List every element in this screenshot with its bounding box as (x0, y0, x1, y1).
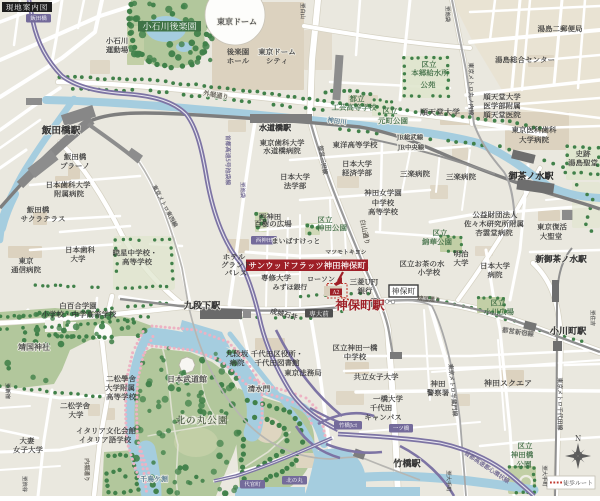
svg-text:イタリア語学校: イタリア語学校 (79, 435, 132, 446)
svg-text:まいばすけっと: まいばすけっと (272, 236, 321, 246)
svg-text:元町公園: 元町公園 (378, 116, 408, 127)
svg-text:日本武道館: 日本武道館 (167, 374, 207, 385)
svg-text:北の丸: 北の丸 (286, 476, 303, 484)
svg-text:竹橋駅: 竹橋駅 (393, 456, 420, 469)
svg-text:至大手町: 至大手町 (445, 470, 453, 492)
svg-text:清水門: 清水門 (248, 384, 271, 395)
svg-text:ローソン: ローソン (307, 274, 335, 284)
svg-text:みずほ銀行: みずほ銀行 (273, 282, 308, 292)
svg-text:三楽病院: 三楽病院 (400, 169, 430, 180)
svg-text:小学校・中学高等学校: 小学校・中学高等学校 (42, 309, 117, 320)
svg-text:至池袋: 至池袋 (444, 6, 452, 23)
svg-text:パレス: パレス (225, 268, 247, 279)
svg-text:代官町: 代官町 (244, 480, 261, 488)
svg-text:公園: 公園 (517, 459, 532, 470)
svg-text:大聖堂: 大聖堂 (540, 231, 563, 242)
svg-text:JR中央線: JR中央線 (397, 142, 425, 151)
svg-text:至住吉: 至住吉 (589, 310, 597, 327)
svg-text:附属病院: 附属病院 (54, 189, 84, 200)
svg-text:マツモトキヨシ: マツモトキヨシ (325, 247, 366, 256)
svg-text:東洋高等学校: 東洋高等学校 (333, 140, 378, 151)
svg-text:小川広場: 小川広場 (484, 307, 514, 318)
svg-text:大学: 大学 (69, 410, 84, 421)
svg-text:経済学部: 経済学部 (342, 168, 372, 179)
svg-text:高等学校: 高等学校 (106, 392, 136, 403)
svg-text:御茶ノ水駅: 御茶ノ水駅 (508, 169, 553, 182)
svg-text:湯島総合センター: 湯島総合センター (495, 55, 555, 66)
svg-text:プラーノ: プラーノ (60, 161, 90, 172)
svg-text:小学校: 小学校 (418, 267, 441, 278)
svg-text:飯田橋: 飯田橋 (30, 14, 47, 22)
svg-text:運動場: 運動場 (106, 45, 129, 56)
svg-text:小川町駅: 小川町駅 (550, 324, 586, 337)
svg-text:現地案内図: 現地案内図 (6, 2, 49, 13)
svg-text:工芸高等学校: 工芸高等学校 (332, 102, 377, 113)
svg-text:三楽病院: 三楽病院 (446, 172, 476, 183)
svg-text:大学病院: 大学病院 (519, 135, 549, 146)
svg-text:病院: 病院 (230, 358, 245, 369)
svg-text:靖国神社: 靖国神社 (18, 342, 50, 353)
svg-text:シティ: シティ (266, 56, 288, 67)
svg-text:神田スクエア: 神田スクエア (484, 378, 532, 389)
svg-text:徒歩ルート: 徒歩ルート (563, 478, 593, 487)
svg-text:公苑: 公苑 (421, 80, 436, 91)
svg-text:至大手町: 至大手町 (541, 465, 549, 487)
svg-text:本郷給水所: 本郷給水所 (411, 68, 449, 79)
svg-text:至新宿: 至新宿 (4, 383, 12, 400)
svg-text:首都高速5号池袋線: 首都高速5号池袋線 (224, 135, 233, 185)
svg-text:北の丸公園: 北の丸公園 (175, 412, 228, 426)
svg-text:大学: 大学 (71, 254, 86, 265)
svg-text:病院: 病院 (488, 270, 503, 281)
svg-text:高等学校: 高等学校 (122, 257, 152, 268)
svg-text:東京ドーム: 東京ドーム (217, 16, 257, 27)
svg-text:竹橋Jct: 竹橋Jct (339, 421, 357, 429)
svg-text:九段下駅: 九段下駅 (184, 298, 220, 311)
svg-text:通信病院: 通信病院 (11, 265, 41, 276)
svg-text:中学校: 中学校 (344, 352, 367, 363)
svg-text:神田公園: 神田公園 (317, 223, 347, 234)
svg-text:新御茶ノ水駅: 新御茶ノ水駅 (535, 253, 587, 265)
svg-text:一ツ橋: 一ツ橋 (393, 424, 410, 432)
svg-text:湯島二郵便局: 湯島二郵便局 (538, 24, 583, 35)
svg-text:高等学校: 高等学校 (368, 207, 398, 218)
svg-text:専大前: 専大前 (309, 309, 329, 318)
svg-text:水道橋駅: 水道橋駅 (259, 122, 291, 133)
svg-text:サンウッドフラッツ神田神保町: サンウッドフラッツ神田神保町 (248, 259, 366, 271)
svg-text:神保町: 神保町 (392, 286, 416, 297)
svg-text:杏雲堂病院: 杏雲堂病院 (475, 228, 513, 239)
svg-text:女子大学: 女子大学 (13, 445, 43, 456)
svg-text:共立女子大学: 共立女子大学 (354, 372, 399, 383)
svg-text:順天堂医院: 順天堂医院 (483, 110, 521, 121)
svg-text:靖国通り: 靖国通り (417, 293, 441, 304)
svg-text:大学: 大学 (454, 258, 469, 269)
svg-text:東京メトロ丸ノ内線: 東京メトロ丸ノ内線 (467, 63, 476, 116)
svg-text:至池袋: 至池袋 (239, 182, 247, 199)
svg-text:東京メトロ千代田線: 東京メトロ千代田線 (556, 378, 565, 431)
svg-text:警察署: 警察署 (427, 388, 450, 399)
svg-text:ホール: ホール (227, 56, 250, 67)
svg-text:至白山: 至白山 (299, 3, 307, 19)
svg-text:神保町駅: 神保町駅 (335, 295, 384, 313)
svg-text:飯田橋駅: 飯田橋駅 (42, 122, 81, 136)
svg-text:法学部: 法学部 (284, 181, 307, 192)
svg-text:湯島聖堂: 湯島聖堂 (568, 158, 598, 169)
svg-text:サクラテラス: サクラテラス (21, 214, 66, 225)
svg-text:西神田: 西神田 (256, 236, 273, 244)
svg-text:東京法務局: 東京法務局 (284, 368, 321, 379)
svg-text:JR総武線: JR総武線 (396, 132, 424, 141)
svg-text:水道橋病院: 水道橋病院 (263, 146, 301, 157)
svg-text:順天堂大学: 順天堂大学 (420, 107, 460, 118)
svg-text:千鳥ケ淵: 千鳥ケ淵 (140, 474, 168, 484)
svg-text:キャンパス: キャンパス (364, 412, 401, 423)
svg-text:錦華公園: 錦華公園 (422, 237, 452, 248)
svg-text:内堀通り: 内堀通り (83, 458, 92, 482)
svg-text:百樹の広場: 百樹の広場 (254, 219, 292, 230)
svg-text:至渋谷: 至渋谷 (21, 476, 29, 493)
svg-text:小石川後楽園: 小石川後楽園 (142, 20, 196, 33)
svg-text:N: N (575, 433, 582, 444)
